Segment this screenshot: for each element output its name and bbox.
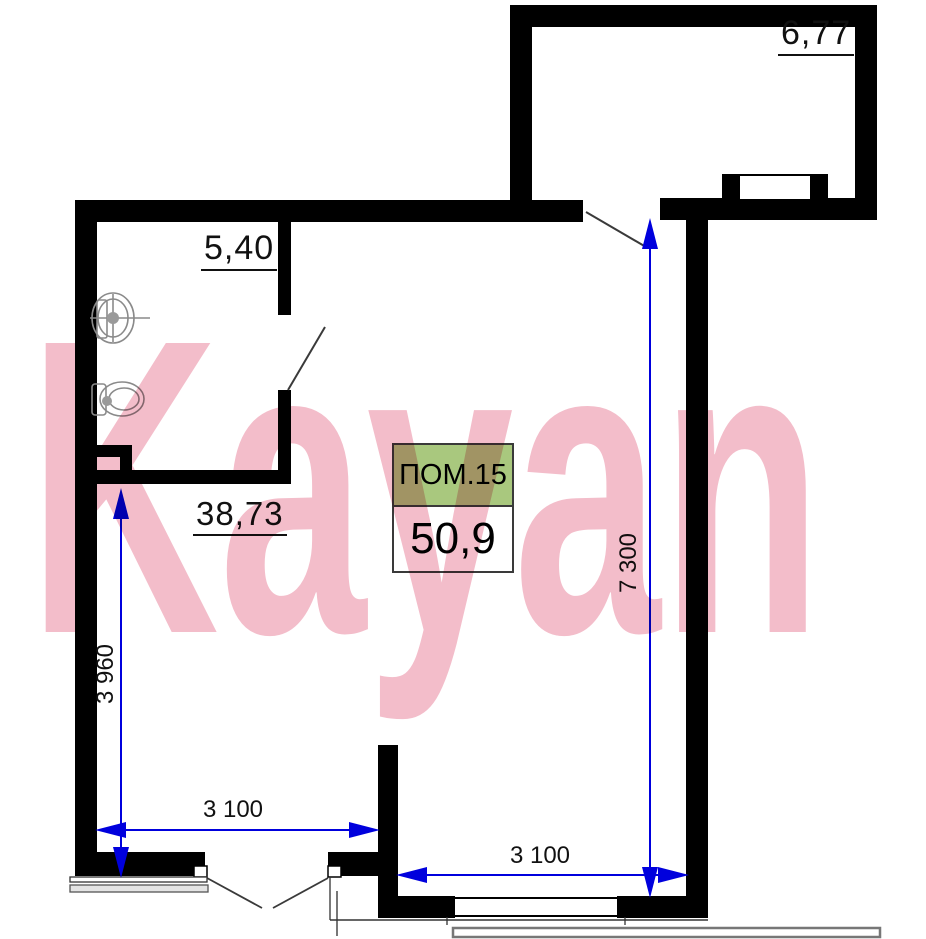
toilet-icon [92,382,144,416]
bottom-window-icon [455,897,617,917]
dim-right-height-label: 7 300 [616,503,642,623]
floor-plan: 6,77 5,40 38,73 ПОМ.15 50,9 3 100 3 100 … [0,0,926,939]
unit-number-label: ПОМ.15 [394,445,512,507]
door-swing-terrace-icon [194,866,341,908]
dim-bottom-left-label: 3 100 [173,797,293,823]
sink-icon [90,293,150,343]
unit-total-area-label: 50,9 [394,507,512,571]
door-swing-entrance-icon [586,212,646,247]
balcony-window-icon [738,174,812,201]
dim-line-right-height [642,218,658,898]
living-area-label: 38,73 [193,495,287,536]
dim-line-bottom-left-width [95,822,380,838]
balcony-area-label: 6,77 [778,14,854,56]
dim-bottom-right-label: 3 100 [480,843,600,869]
dim-left-height-label: 3 960 [93,614,119,734]
bathroom-area-label: 5,40 [201,229,277,271]
door-swing-bathroom-icon [288,327,325,390]
unit-label-box: ПОМ.15 50,9 [392,443,514,573]
